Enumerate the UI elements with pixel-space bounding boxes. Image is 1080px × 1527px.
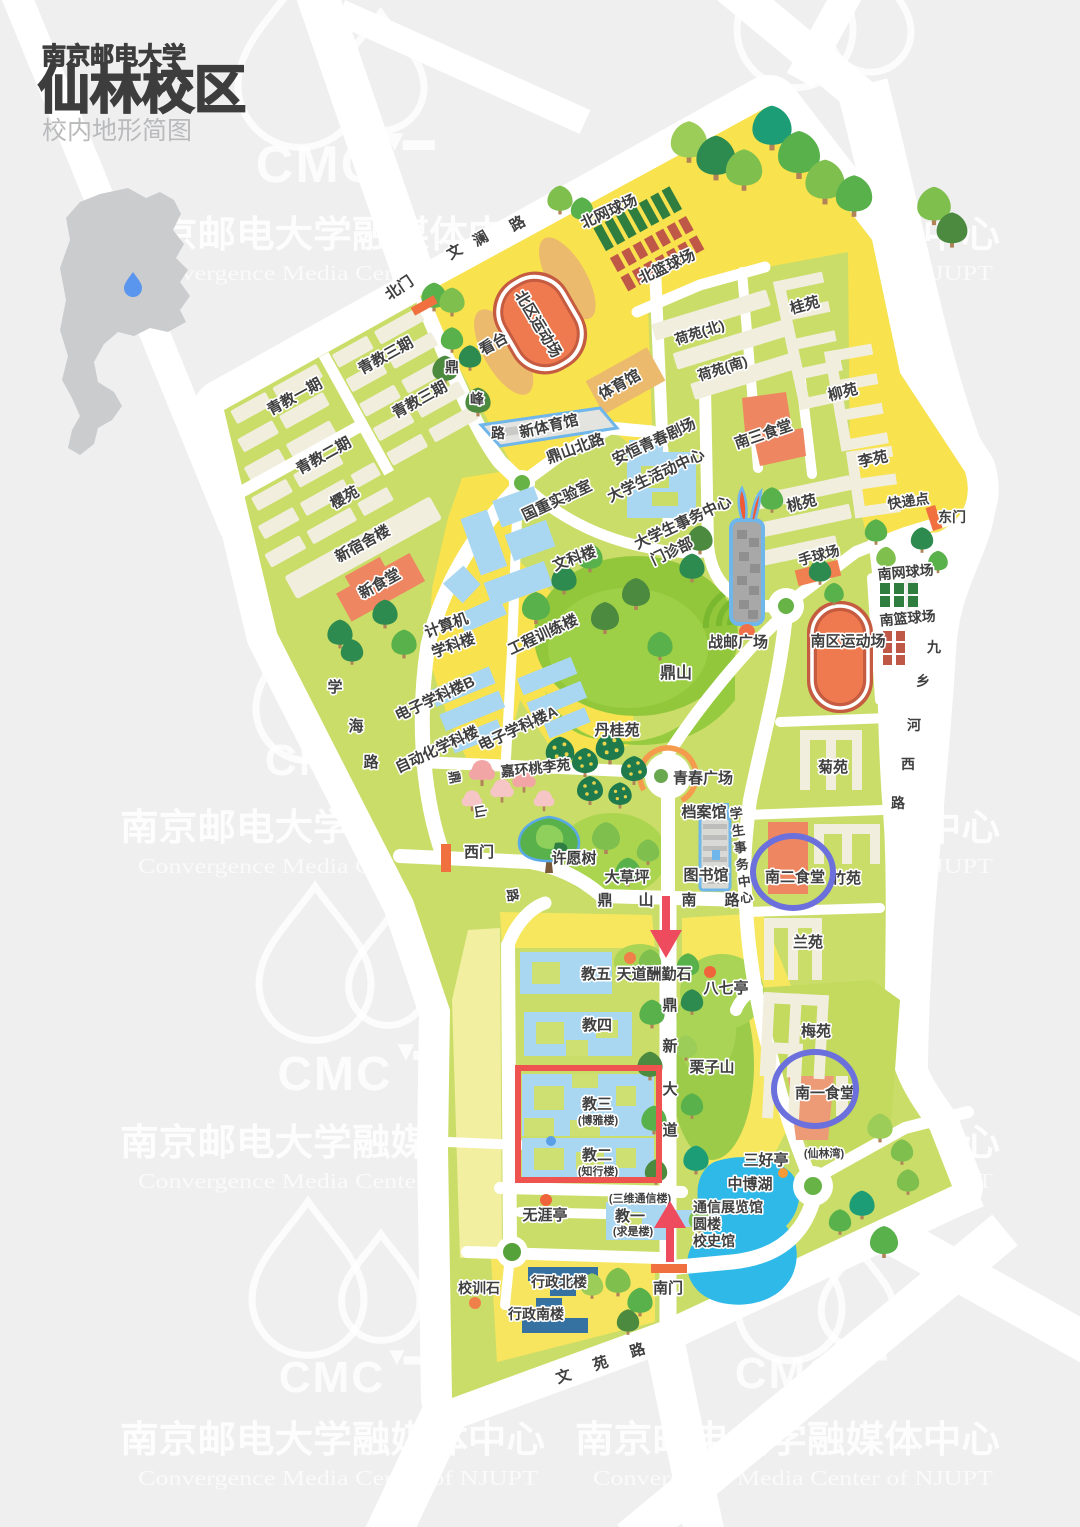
svg-text:南: 南 — [681, 891, 696, 909]
svg-text:(博雅楼): (博雅楼) — [578, 1113, 619, 1127]
svg-text:战邮广场: 战邮广场 — [708, 633, 768, 651]
svg-text:天道酬勤石: 天道酬勤石 — [616, 965, 691, 983]
svg-text:行政南楼: 行政南楼 — [507, 1306, 564, 1322]
svg-text:心: 心 — [739, 889, 754, 906]
svg-text:乡: 乡 — [916, 673, 930, 689]
svg-text:新: 新 — [662, 1037, 677, 1055]
svg-text:鼎: 鼎 — [662, 996, 677, 1014]
svg-text:教二: 教二 — [581, 1146, 612, 1164]
svg-text:山: 山 — [472, 804, 489, 819]
svg-text:校史馆: 校史馆 — [693, 1233, 735, 1249]
svg-text:Convergence Media Center of: Convergence Media Center of NJUPT — [593, 1466, 993, 1490]
svg-text:▾▬: ▾▬ — [386, 121, 435, 157]
svg-text:大草坪: 大草坪 — [604, 868, 649, 886]
svg-text:行政北楼: 行政北楼 — [530, 1274, 587, 1290]
svg-text:山: 山 — [638, 892, 653, 909]
svg-text:丹桂苑: 丹桂苑 — [594, 721, 639, 739]
svg-text:南一食堂: 南一食堂 — [795, 1084, 855, 1102]
svg-text:西门: 西门 — [464, 843, 494, 861]
svg-text:鼎: 鼎 — [597, 891, 612, 909]
svg-text:东门: 东门 — [938, 509, 966, 525]
svg-text:教一: 教一 — [614, 1207, 645, 1225]
svg-text:路: 路 — [363, 753, 379, 771]
svg-text:▾▬: ▾▬ — [845, 1337, 887, 1367]
svg-text:图书馆: 图书馆 — [683, 866, 728, 884]
svg-text:CMC: CMC — [279, 1353, 385, 1402]
svg-text:教五: 教五 — [580, 965, 611, 983]
svg-text:鼎: 鼎 — [446, 770, 463, 785]
svg-text:CMC: CMC — [256, 136, 380, 194]
svg-text:河: 河 — [907, 717, 921, 733]
svg-text:仙林校区: 仙林校区 — [38, 62, 246, 120]
svg-text:校内地形简图: 校内地形简图 — [42, 117, 192, 145]
svg-text:西: 西 — [901, 756, 915, 772]
svg-text:青春广场: 青春广场 — [673, 769, 733, 787]
svg-text:大: 大 — [662, 1080, 677, 1098]
svg-text:学: 学 — [729, 805, 744, 822]
svg-text:CMC: CMC — [277, 1048, 392, 1101]
svg-text:南京邮电大学融媒体中心: 南京邮电大学融媒体中心 — [575, 1418, 1000, 1460]
svg-text:南二食堂: 南二食堂 — [765, 868, 825, 886]
svg-text:档案馆: 档案馆 — [681, 803, 726, 821]
svg-text:路: 路 — [724, 891, 740, 909]
svg-text:三好亭: 三好亭 — [743, 1151, 788, 1169]
svg-text:事: 事 — [733, 839, 748, 856]
svg-text:(仙林湾): (仙林湾) — [804, 1146, 845, 1160]
svg-text:鼎: 鼎 — [445, 359, 459, 375]
svg-text:学: 学 — [327, 678, 342, 696]
svg-text:南区运动场: 南区运动场 — [810, 632, 885, 650]
svg-text:教三: 教三 — [581, 1095, 612, 1113]
svg-text:南京邮电大学融媒体中心: 南京邮电大学融媒体中心 — [120, 1418, 545, 1460]
svg-text:中博湖: 中博湖 — [727, 1175, 772, 1193]
svg-text:南门: 南门 — [653, 1279, 683, 1297]
svg-text:校训石: 校训石 — [458, 1280, 500, 1296]
svg-text:栗子山: 栗子山 — [689, 1059, 734, 1076]
svg-text:九: 九 — [926, 639, 941, 655]
svg-text:生: 生 — [731, 822, 746, 839]
svg-text:许愿树: 许愿树 — [551, 849, 596, 867]
svg-text:菊苑: 菊苑 — [818, 758, 848, 776]
svg-text:CMC: CMC — [735, 1349, 841, 1398]
svg-text:通信展览馆: 通信展览馆 — [693, 1199, 763, 1215]
svg-text:圆楼: 圆楼 — [693, 1216, 721, 1232]
svg-text:道: 道 — [662, 1121, 677, 1139]
svg-text:(求是楼): (求是楼) — [613, 1224, 654, 1238]
svg-text:八七亭: 八七亭 — [702, 979, 748, 997]
svg-text:梅苑: 梅苑 — [801, 1022, 831, 1040]
svg-text:鼎山: 鼎山 — [660, 663, 692, 682]
svg-text:教四: 教四 — [581, 1016, 612, 1034]
svg-text:(知行楼): (知行楼) — [578, 1164, 619, 1178]
svg-text:路: 路 — [491, 425, 506, 441]
svg-text:(三维通信楼): (三维通信楼) — [609, 1191, 672, 1205]
svg-text:海: 海 — [348, 717, 363, 735]
svg-text:路: 路 — [891, 795, 906, 811]
svg-text:峰: 峰 — [470, 391, 485, 407]
svg-text:Convergence Media Center of: Convergence Media Center of NJUPT — [138, 1466, 538, 1490]
svg-text:兰苑: 兰苑 — [793, 933, 823, 951]
svg-text:中: 中 — [737, 873, 752, 890]
svg-text:无涯亭: 无涯亭 — [521, 1206, 567, 1224]
